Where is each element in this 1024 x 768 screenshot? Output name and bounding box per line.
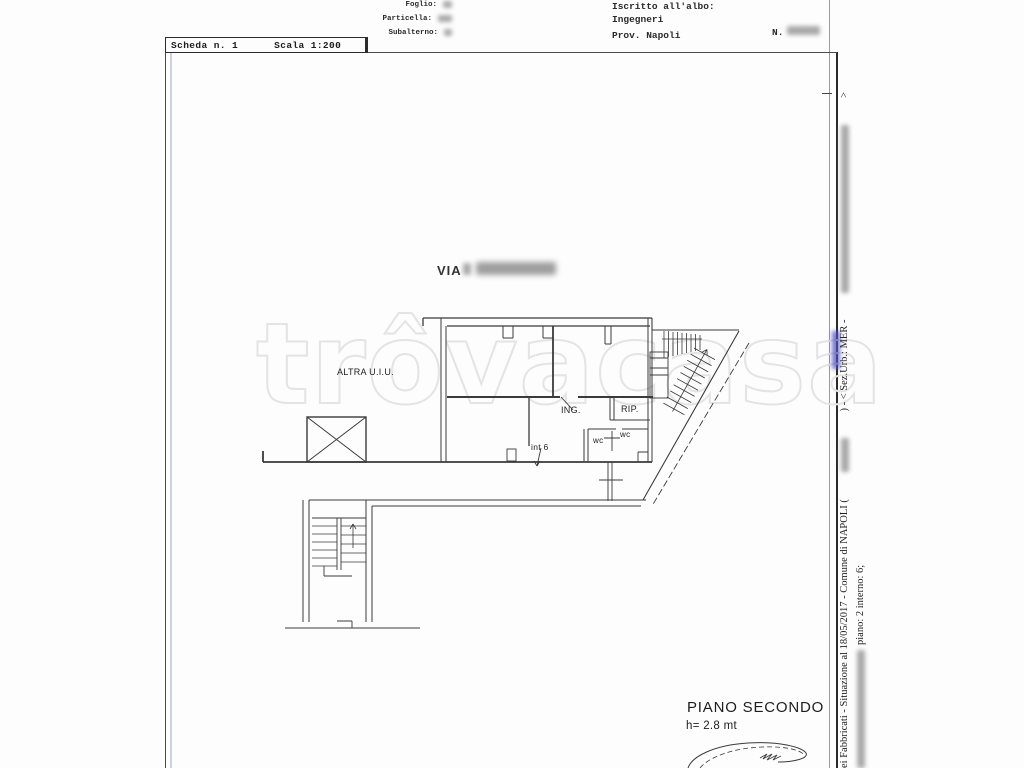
edge-text-a-start: ei Fabbricati - Situazione al 18/05/2017…	[839, 499, 850, 768]
stairwell	[303, 500, 372, 622]
interior-walls	[447, 326, 653, 446]
stairwell-bottom-line	[285, 621, 420, 628]
left-wall	[441, 318, 446, 462]
connector-stub	[599, 462, 623, 501]
window-symbols	[503, 326, 611, 344]
edge-text-redacted-3	[857, 650, 865, 768]
edge-text-line-a: ei Fabbricati - Situazione al 18/05/2017…	[838, 92, 851, 768]
room-label-ing: ING.	[561, 405, 581, 415]
room-label-rip: RIP.	[621, 404, 639, 414]
floor-title: PIANO SECONDO	[687, 699, 824, 716]
room-label-altra-uiu: ALTRA U.I.U.	[337, 367, 394, 377]
floor-height: h= 2.8 mt	[686, 720, 737, 732]
top-wall	[423, 318, 739, 330]
room-label-wc-right: wc	[620, 430, 630, 439]
external-staircase	[662, 344, 717, 418]
lower-corridor-lines	[309, 500, 646, 506]
street-label: VIA	[437, 263, 462, 278]
edge-text-a-mid: ) - < Sez.Urb.: MER -	[839, 320, 850, 412]
edge-text-redacted-2	[841, 125, 849, 293]
room-label-int6: int 6	[531, 442, 549, 452]
edge-text-line-b: piano: 2 interno: 6;	[854, 92, 867, 768]
street-name-redacted-1	[463, 263, 471, 275]
wc-box	[584, 429, 648, 462]
elevator-shaft	[307, 417, 366, 462]
cadastral-plan-page: Scheda n. 1 Scala 1:200 Foglio: Particel…	[0, 0, 1024, 768]
bottom-wall	[263, 451, 652, 462]
room-label-wc-left: wc	[593, 436, 603, 445]
edge-text-b: piano: 2 interno: 6;	[855, 565, 866, 645]
side-landing	[650, 352, 668, 398]
edge-link-redacted	[832, 331, 840, 369]
signature-scribble	[688, 743, 806, 768]
floor-plan-drawing	[0, 0, 1024, 768]
edge-text-redacted-1	[841, 438, 849, 472]
edge-text-a-end: >	[839, 92, 850, 98]
street-name-redacted-2	[476, 262, 556, 275]
